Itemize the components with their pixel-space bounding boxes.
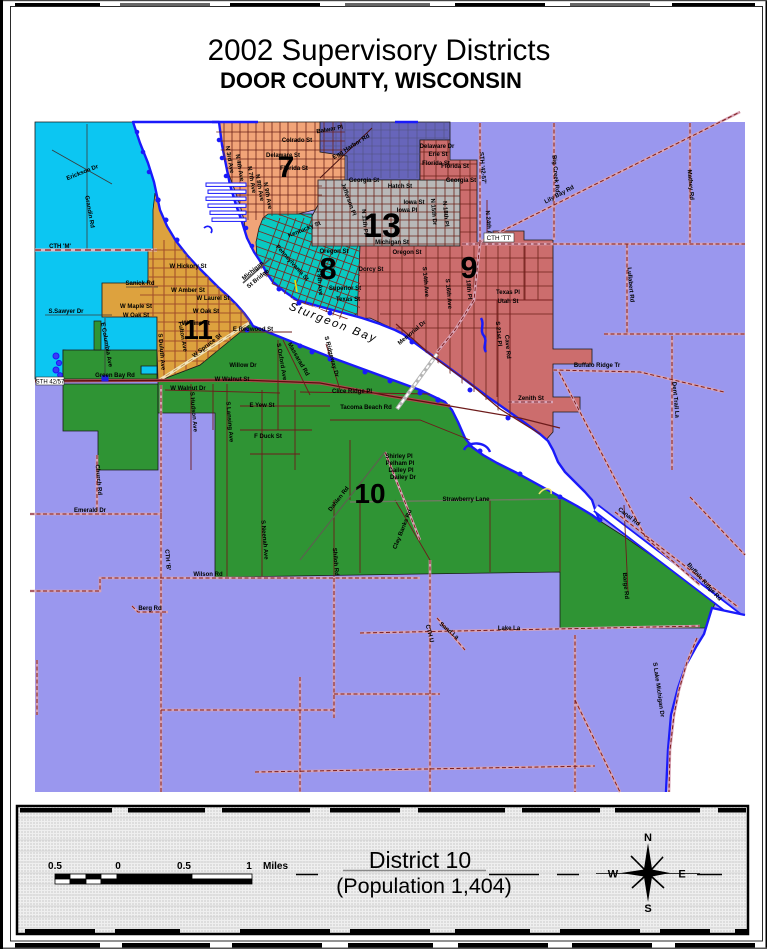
svg-text:Berg Rd: Berg Rd [138,606,162,612]
svg-text:Hatch St: Hatch St [388,184,412,190]
svg-text:W Maple St: W Maple St [120,304,152,310]
svg-text:E: E [678,869,685,881]
svg-text:CTH 'TT': CTH 'TT' [487,235,512,242]
svg-text:CTH 'M': CTH 'M' [49,244,71,250]
svg-text:Utah St: Utah St [498,299,519,305]
svg-text:Miles: Miles [263,861,288,872]
svg-text:Dailey Dr: Dailey Dr [390,475,417,481]
svg-text:Lake La: Lake La [498,626,521,632]
svg-text:Iowa St: Iowa St [403,200,424,206]
svg-text:Delaware St: Delaware St [266,153,300,159]
svg-text:Oregon St: Oregon St [392,250,421,256]
svg-text:Colrado St: Colrado St [282,138,312,144]
svg-text:Shirley Pl: Shirley Pl [385,454,413,460]
svg-text:Pelham Pl: Pelham Pl [386,461,415,467]
svg-text:S.Sawyer Dr: S.Sawyer Dr [48,309,84,315]
svg-text:Michigan St: Michigan St [375,240,409,246]
svg-text:0.5: 0.5 [177,861,191,872]
svg-text:Emerald Dr: Emerald Dr [74,508,107,514]
svg-text:1: 1 [246,861,252,872]
svg-text:W Laurel St: W Laurel St [196,296,229,302]
svg-text:Willow Dr: Willow Dr [229,363,257,369]
svg-text:W Walnut Dr: W Walnut Dr [170,386,206,392]
svg-text:W: W [608,869,619,881]
svg-text:Dailey Pl: Dailey Pl [388,468,413,474]
svg-text:Florida St: Florida St [441,164,469,170]
svg-text:W Oak St: W Oak St [193,309,219,315]
svg-text:W Pine St: W Pine St [182,321,210,327]
svg-text:11: 11 [183,314,213,345]
svg-text:W Walnut St: W Walnut St [215,377,250,383]
svg-text:Wilson Rd: Wilson Rd [193,572,223,578]
svg-text:Tacoma Beach Rd: Tacoma Beach Rd [340,405,392,411]
svg-text:Florida St: Florida St [280,166,308,172]
svg-text:Green Bay Rd: Green Bay Rd [95,373,135,379]
svg-text:F Duck St: F Duck St [254,434,282,440]
svg-text:Georgia St: Georgia St [446,178,476,184]
svg-text:Strawberry Lane: Strawberry Lane [442,497,490,503]
svg-text:E Yew St: E Yew St [250,403,275,409]
svg-text:Erie St: Erie St [428,152,447,158]
svg-text:S: S [644,903,651,915]
svg-text:Texas St: Texas St [336,297,360,303]
svg-text:Iowa Pl: Iowa Pl [397,208,418,214]
svg-text:W Amber St: W Amber St [171,288,205,294]
svg-text:Texas Pl: Texas Pl [496,290,520,296]
svg-text:Dorcy St: Dorcy St [359,267,384,273]
svg-text:Oregon St: Oregon St [319,249,348,255]
svg-text:Clice Ridge Pl: Clice Ridge Pl [332,389,372,395]
svg-text:Sanick Rd: Sanick Rd [125,281,154,287]
svg-text:E Redwood St: E Redwood St [233,327,273,333]
svg-text:0.5: 0.5 [48,861,62,872]
svg-text:Zenith St: Zenith St [518,396,544,402]
svg-text:STH 42/57: STH 42/57 [36,380,65,386]
svg-text:Superior St: Superior St [329,286,361,292]
svg-text:Georgia St: Georgia St [349,178,379,184]
svg-text:Delaware Dr: Delaware Dr [420,144,455,150]
svg-text:W Oak St: W Oak St [123,313,149,319]
svg-text:(Population 1,404): (Population 1,404) [336,874,512,898]
svg-text:Buffalo Ridge Tr: Buffalo Ridge Tr [574,363,621,369]
svg-text:0: 0 [115,861,121,872]
svg-text:DOOR COUNTY, WISCONSIN: DOOR COUNTY, WISCONSIN [220,68,522,93]
svg-text:District 10: District 10 [369,847,471,873]
svg-text:N: N [644,832,652,844]
svg-text:2002 Supervisory Districts: 2002 Supervisory Districts [208,34,551,67]
svg-text:10: 10 [354,478,385,509]
svg-text:W Hickory St: W Hickory St [169,264,206,270]
